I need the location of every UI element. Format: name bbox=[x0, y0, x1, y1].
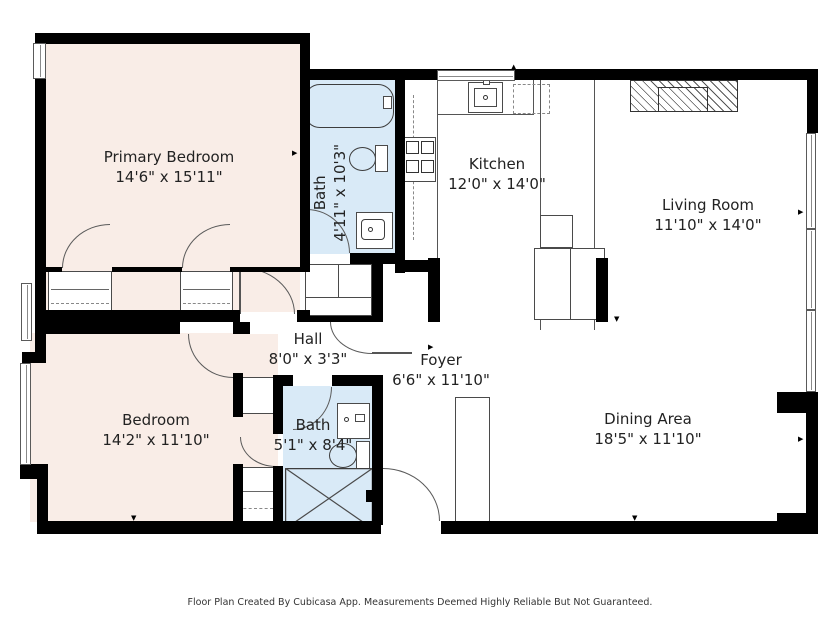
exterior-wall-bottom-left bbox=[38, 521, 381, 534]
room-label-bedroom: Bedroom 14'2" x 11'10" bbox=[86, 411, 226, 451]
exterior-wall-top-left bbox=[35, 33, 310, 44]
wall-bath1-west bbox=[300, 44, 310, 272]
room-dims: 14'6" x 15'11" bbox=[99, 168, 239, 188]
exterior-wall-left-lower bbox=[37, 464, 48, 534]
room-dims: 12'0" x 14'0" bbox=[427, 175, 567, 195]
vanity-top-drain-icon bbox=[368, 227, 373, 232]
kitchen-counter-north-edge bbox=[437, 114, 534, 115]
closet-rod-line bbox=[51, 303, 109, 304]
measure-arrow: ▶ bbox=[428, 344, 433, 351]
measure-arrow: ▲ bbox=[511, 64, 516, 71]
wall-closet-top-a bbox=[46, 267, 62, 272]
window-living-right-3 bbox=[806, 310, 816, 392]
exterior-wall-left-step bbox=[22, 352, 46, 363]
exterior-wall-bottom-right bbox=[441, 521, 790, 534]
wall-closet-top-b bbox=[112, 267, 182, 272]
wall-bath1-east bbox=[395, 69, 405, 273]
room-label-bath-top: Bath 4'11" x 10'3" bbox=[311, 127, 351, 259]
measure-arrow: ▼ bbox=[131, 515, 136, 522]
pantry-cabinet-icon bbox=[540, 215, 573, 248]
exterior-wall-right-upper bbox=[807, 69, 818, 133]
kitchen-sink-drain-icon bbox=[483, 95, 488, 100]
window-glass-line bbox=[811, 231, 812, 308]
measure-arrow: ▼ bbox=[614, 316, 619, 323]
room-name: Primary Bedroom bbox=[99, 148, 239, 168]
wall-bath2-north-a bbox=[283, 375, 293, 386]
wall-bath2-north-b bbox=[332, 375, 373, 386]
vanity-top-basin-icon bbox=[361, 219, 385, 240]
window-glass-line bbox=[40, 45, 41, 77]
room-name: Bath bbox=[243, 416, 383, 436]
exterior-wall-right-lower bbox=[806, 413, 818, 514]
kitchen-upper-cabinet-box bbox=[513, 84, 550, 114]
wall-hallcloset-south bbox=[300, 316, 383, 322]
window-glass-line bbox=[27, 285, 28, 339]
exterior-wall-top bbox=[300, 69, 818, 80]
room-dims: 6'6" x 11'10" bbox=[371, 371, 511, 391]
closet-rod-line bbox=[183, 303, 230, 304]
room-label-primary-bedroom: Primary Bedroom 14'6" x 15'11" bbox=[99, 148, 239, 188]
stove-burner-icon bbox=[421, 141, 434, 154]
door-arc-entry bbox=[383, 468, 440, 521]
room-dims: 4'11" x 10'3" bbox=[331, 127, 351, 259]
wall-bath1-south-a bbox=[300, 253, 307, 264]
room-name: Hall bbox=[238, 330, 378, 350]
toilet-bowl-top-icon bbox=[349, 147, 376, 171]
wall-kitchen-southwest bbox=[395, 260, 438, 272]
closet-shelf-line bbox=[238, 491, 273, 492]
column-pillar bbox=[455, 397, 490, 528]
refrigerator-icon bbox=[534, 248, 571, 320]
wall-stub-foyer-east bbox=[596, 258, 608, 322]
closet-primary-1 bbox=[48, 271, 112, 313]
window-left-middle bbox=[21, 283, 32, 341]
window-living-right-1 bbox=[806, 133, 816, 229]
room-label-hall: Hall 8'0" x 3'3" bbox=[238, 330, 378, 370]
floor-plan: Primary Bedroom 14'6" x 15'11" Bath 4'11… bbox=[0, 0, 840, 630]
wall-stub-hall-east bbox=[372, 258, 383, 322]
measure-arrow: ▼ bbox=[632, 515, 637, 522]
window-glass-line bbox=[439, 76, 513, 77]
bathtub-icon bbox=[304, 84, 394, 128]
measure-arrow: ▲ bbox=[750, 72, 755, 79]
wall-closet-top-c bbox=[230, 267, 300, 272]
hall-closet-right bbox=[338, 264, 372, 298]
window-living-right-2 bbox=[806, 229, 816, 310]
closet-shelf-line bbox=[51, 289, 109, 290]
footer-note: Floor Plan Created By Cubicasa App. Meas… bbox=[0, 597, 840, 608]
stove-burner-icon bbox=[406, 141, 419, 154]
window-glass-line bbox=[811, 135, 812, 227]
measure-arrow: ▲ bbox=[134, 316, 139, 323]
fireplace-insert-icon bbox=[658, 87, 708, 112]
measure-arrow: ◀ bbox=[40, 150, 45, 157]
window-glass-line bbox=[26, 365, 27, 463]
measure-arrow: ▶ bbox=[798, 436, 803, 443]
room-name: Bath bbox=[311, 127, 331, 259]
window-bedroom-left bbox=[20, 363, 31, 465]
room-name: Kitchen bbox=[427, 155, 567, 175]
exterior-wall-left-upper bbox=[35, 33, 46, 353]
closet-primary-2 bbox=[180, 271, 233, 313]
room-name: Bedroom bbox=[86, 411, 226, 431]
measure-arrow: ▶ bbox=[798, 209, 803, 216]
room-label-kitchen: Kitchen 12'0" x 14'0" bbox=[427, 155, 567, 195]
door-leaf-primary-bedroom bbox=[239, 267, 241, 314]
shower-icon bbox=[285, 468, 373, 529]
room-name: Foyer bbox=[371, 351, 511, 371]
window-kitchen-top bbox=[437, 70, 515, 81]
room-dims: 14'2" x 11'10" bbox=[86, 431, 226, 451]
room-label-dining-area: Dining Area 18'5" x 11'10" bbox=[578, 410, 718, 450]
wall-vestibule-west-b bbox=[233, 464, 243, 528]
room-name: Living Room bbox=[638, 196, 778, 216]
wall-bath2-west-b bbox=[273, 466, 283, 530]
wall-vestibule-west-a bbox=[233, 373, 243, 417]
hall-closet-left bbox=[305, 264, 339, 298]
room-label-living-room: Living Room 11'10" x 14'0" bbox=[638, 196, 778, 236]
room-label-bath-bottom: Bath 5'1" x 8'4" bbox=[243, 416, 383, 456]
window-glass-line bbox=[811, 312, 812, 390]
toilet-tank-top-icon bbox=[375, 145, 388, 172]
room-dims: 18'5" x 11'10" bbox=[578, 430, 718, 450]
bathtub-faucet-icon bbox=[383, 96, 392, 109]
closet-shelf-line bbox=[183, 289, 230, 290]
wall-bedroom2-north-a bbox=[35, 322, 180, 334]
exterior-wall-right-notch-top bbox=[777, 392, 818, 413]
room-name: Dining Area bbox=[578, 410, 718, 430]
measure-arrow: ▶ bbox=[292, 150, 297, 157]
stove-burner-icon bbox=[406, 160, 419, 173]
measure-arrow: ▲ bbox=[226, 36, 231, 43]
shower-valve-icon bbox=[366, 490, 373, 502]
closet-rod-line bbox=[238, 508, 273, 509]
room-dims: 8'0" x 3'3" bbox=[238, 350, 378, 370]
room-dims: 5'1" x 8'4" bbox=[243, 436, 383, 456]
hall-closet-shelf bbox=[305, 297, 372, 316]
window-primary-bedroom-left bbox=[33, 43, 46, 79]
room-dims: 11'10" x 14'0" bbox=[638, 216, 778, 236]
room-label-foyer: Foyer 6'6" x 11'10" bbox=[371, 351, 511, 391]
